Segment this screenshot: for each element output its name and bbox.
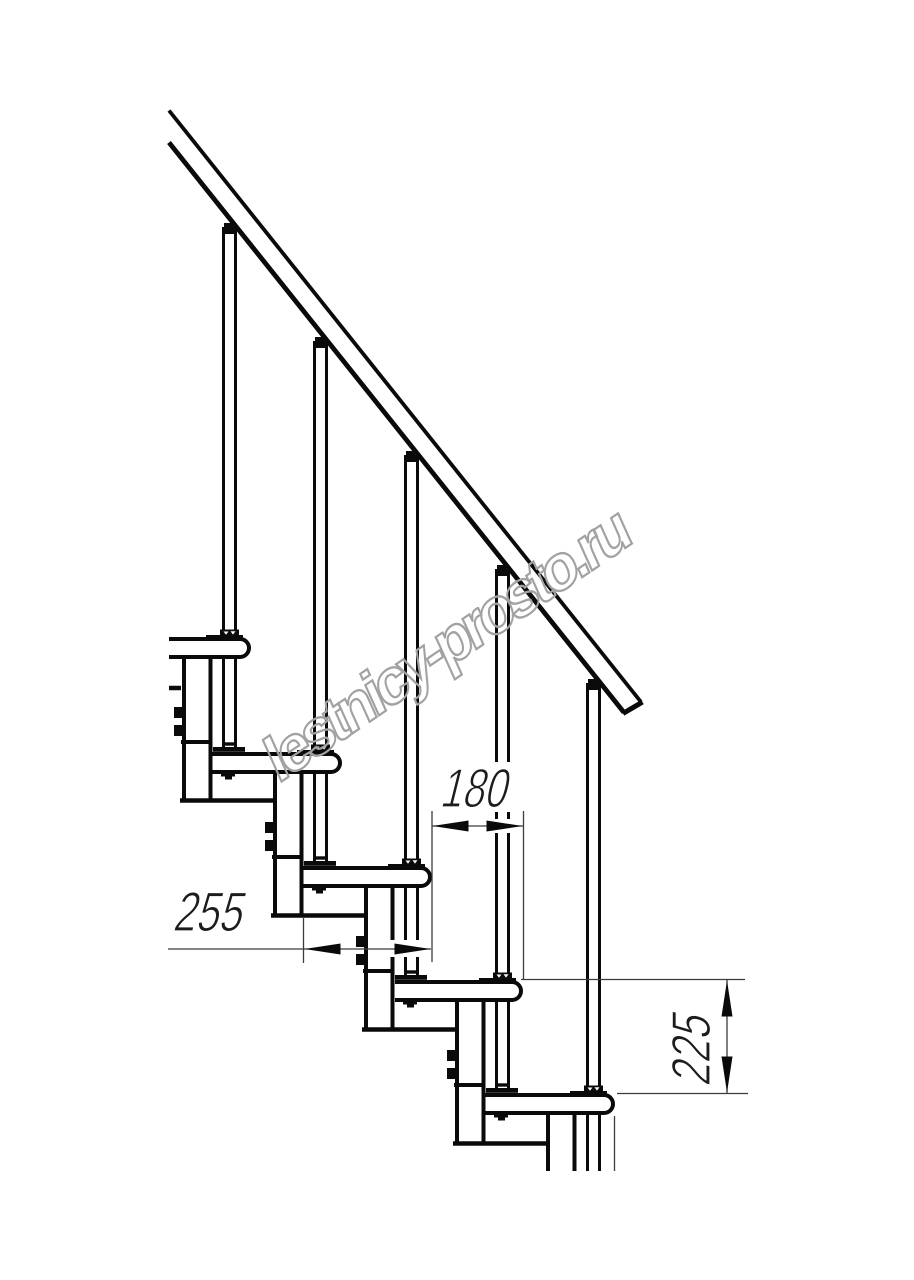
- svg-text:225: 225: [660, 1005, 722, 1090]
- svg-text:lestnicy-prosto.ru: lestnicy-prosto.ru: [255, 490, 641, 797]
- svg-text:255: 255: [169, 881, 253, 944]
